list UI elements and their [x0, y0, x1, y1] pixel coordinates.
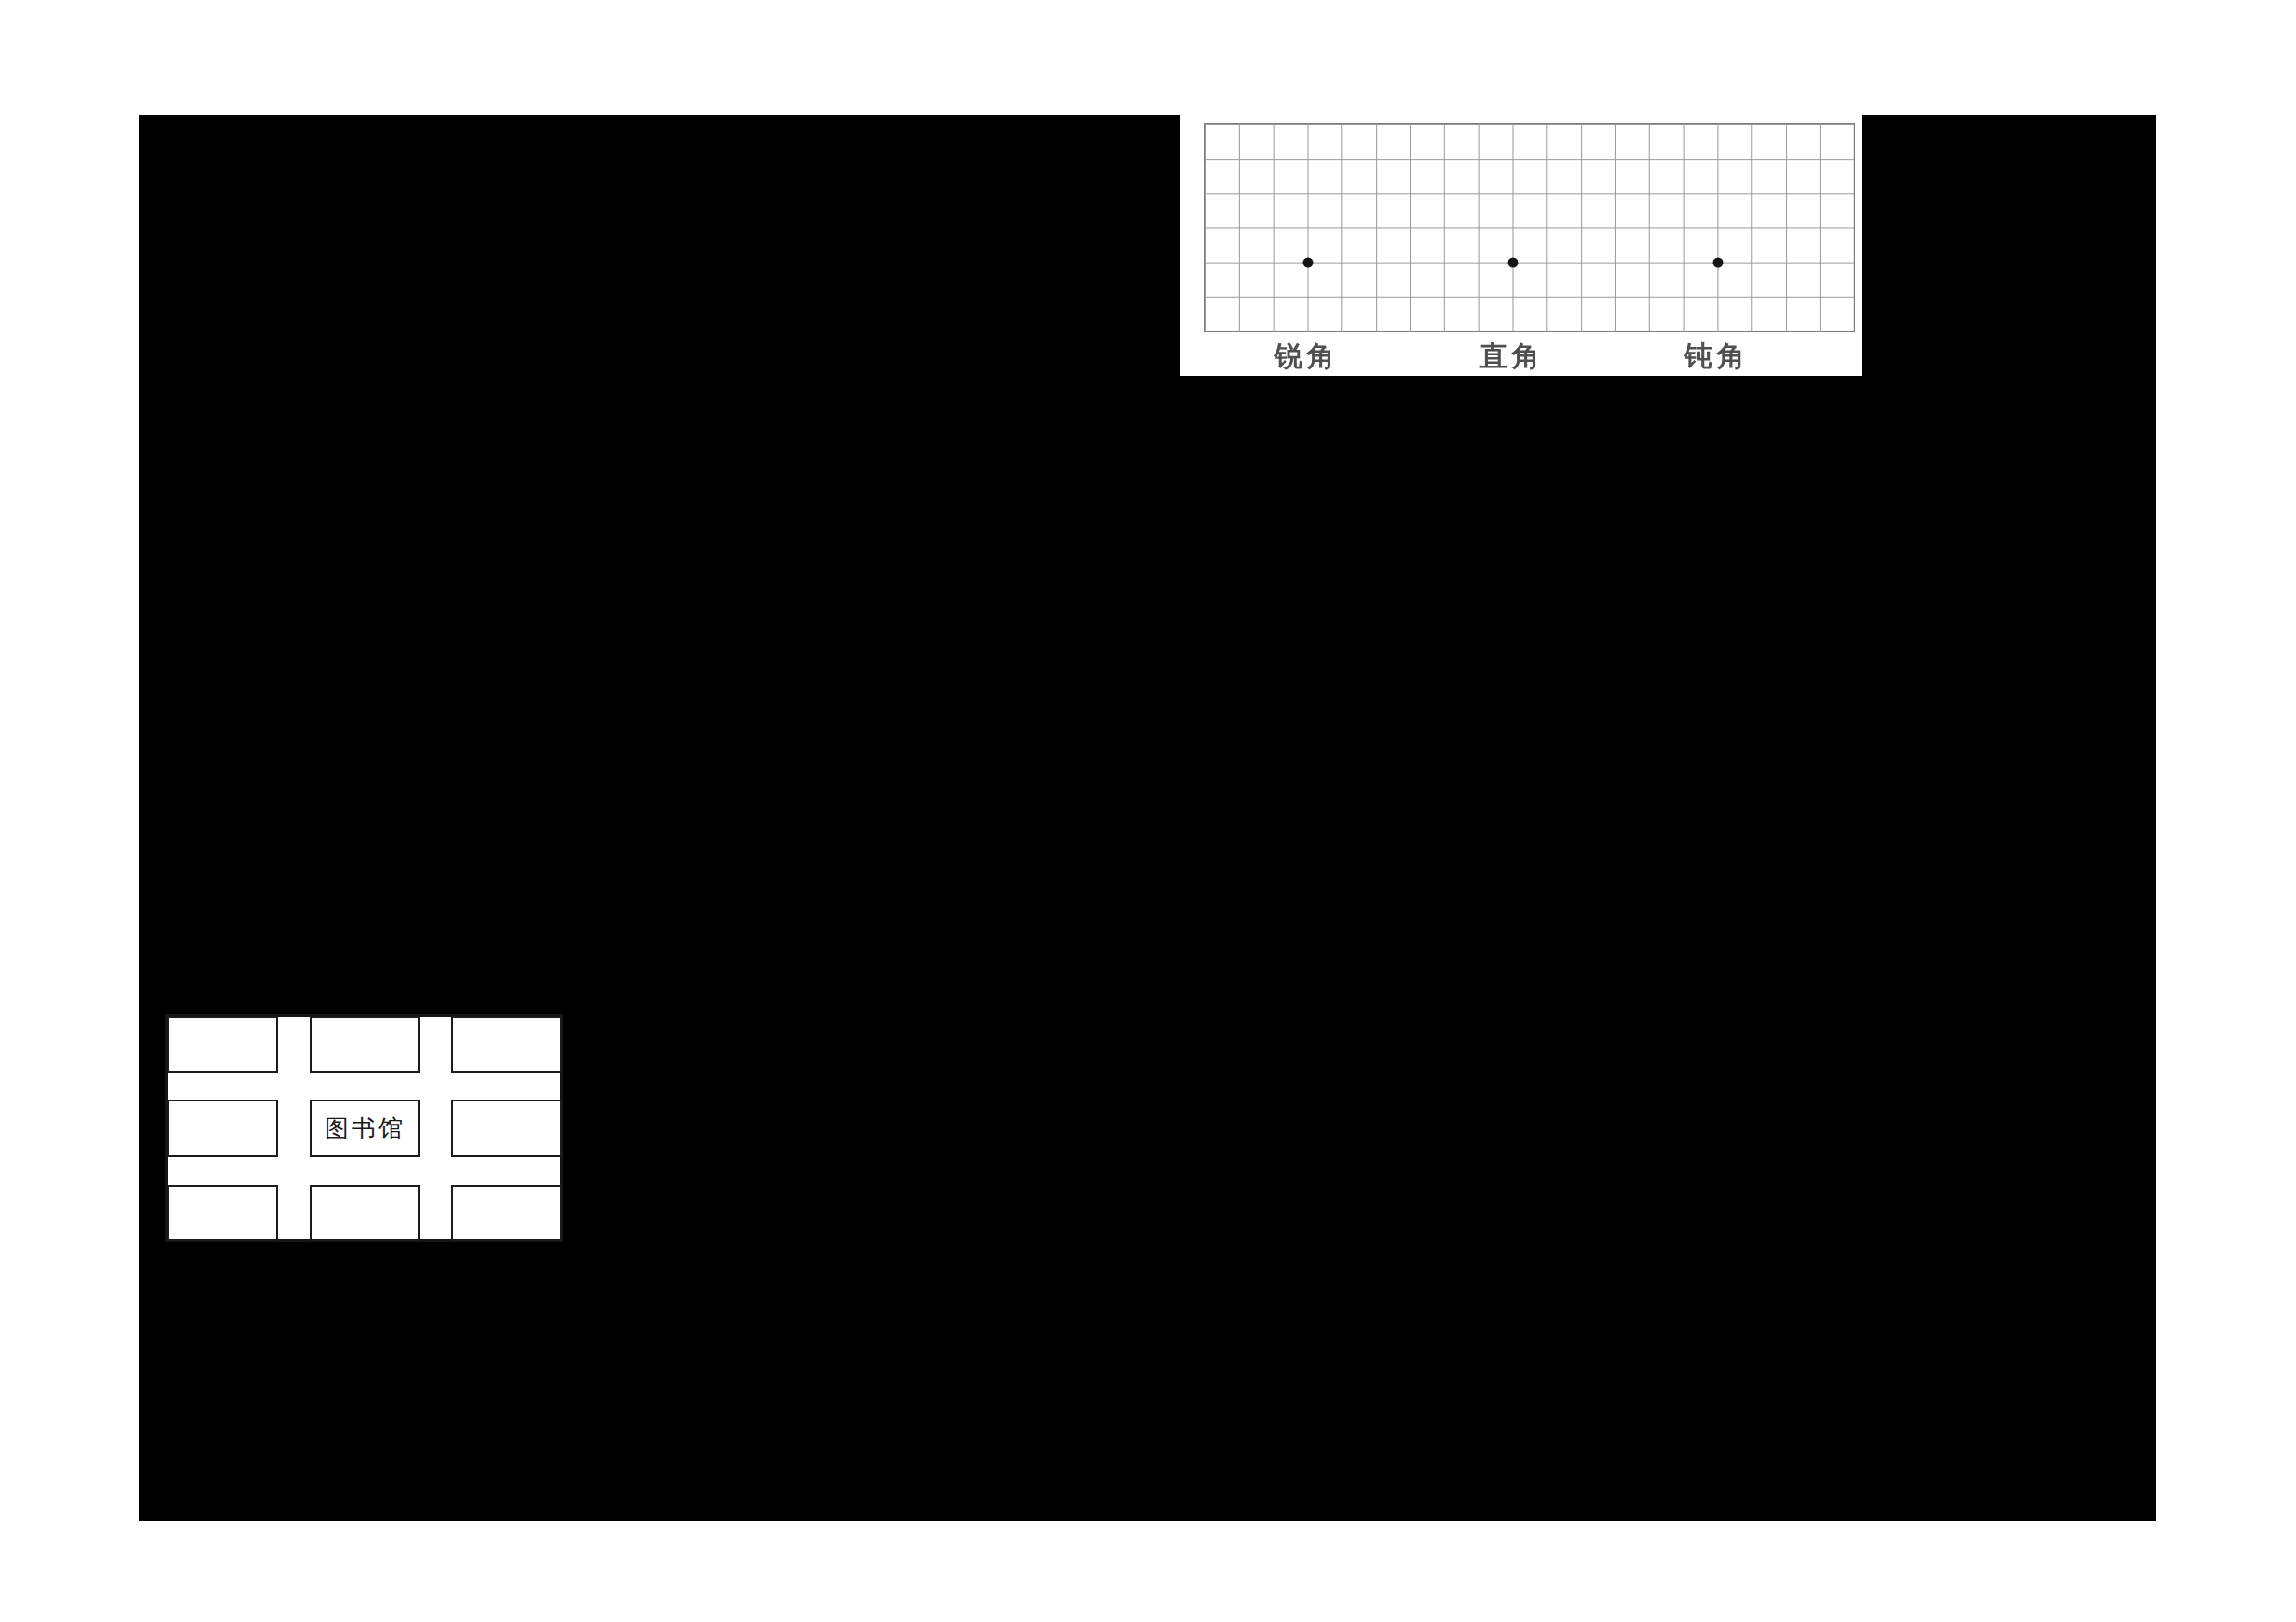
angle-vertex-dot	[1712, 257, 1723, 267]
worksheet-page: 锐角 直角 钝角 图书馆	[0, 0, 2296, 1622]
city-block	[451, 1185, 562, 1241]
city-block	[167, 1185, 278, 1241]
angle-type-label-acute: 锐角	[1275, 338, 1340, 376]
city-block	[167, 1100, 278, 1157]
library-map-figure: 图书馆	[165, 1014, 563, 1242]
angle-type-label-obtuse: 钝角	[1685, 338, 1750, 376]
city-block	[451, 1100, 562, 1157]
angle-type-label-right: 直角	[1480, 338, 1545, 376]
city-block	[167, 1016, 278, 1073]
library-label: 图书馆	[325, 1113, 405, 1145]
city-block	[310, 1185, 420, 1241]
city-block-library: 图书馆	[310, 1100, 420, 1157]
angle-vertex-dot	[1302, 257, 1313, 267]
square-grid	[1204, 123, 1855, 332]
map-street-area: 图书馆	[168, 1017, 560, 1239]
city-block	[451, 1016, 562, 1073]
angle-grid-figure: 锐角 直角 钝角	[1180, 115, 1862, 376]
city-block	[310, 1016, 420, 1073]
angle-vertex-dot	[1507, 257, 1518, 267]
